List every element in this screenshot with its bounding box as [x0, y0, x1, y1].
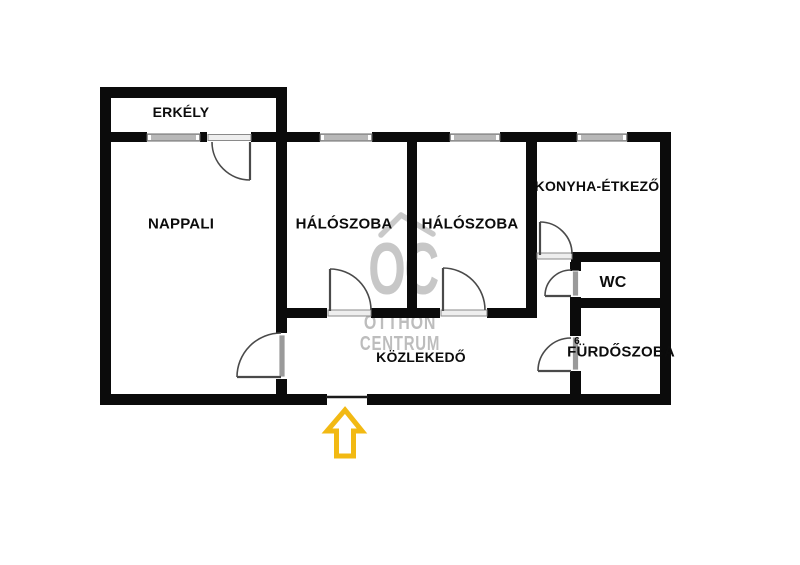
door-swing-arc [237, 333, 281, 377]
window-kitchen [577, 134, 627, 141]
window-cap [451, 135, 454, 140]
door-swing-arc [540, 222, 572, 254]
wall-wc-bottom [570, 298, 671, 308]
window-balcony [147, 134, 200, 141]
room-label-kozlekedo: KÖZLEKEDŐ [376, 350, 466, 364]
door-leaf-closed [279, 335, 285, 377]
wall-bottom-left [100, 394, 327, 405]
window-cap [496, 135, 499, 140]
room-label-nappali: NAPPALI [148, 217, 214, 232]
door-sill [328, 310, 371, 316]
wall-top-pier [500, 132, 577, 142]
wall-top-pier [100, 132, 147, 142]
window-cap [623, 135, 626, 140]
window-cap [196, 135, 199, 140]
door-swing-arc [538, 338, 571, 371]
wall-bedroom2-right [526, 132, 537, 318]
door-sill [537, 253, 572, 259]
door-swing-arc [545, 270, 571, 296]
wc-door [545, 270, 579, 296]
door-swing-arc [443, 268, 485, 310]
wall-bedroom-divider [407, 132, 417, 318]
wall-bedrooms-bottom [371, 308, 440, 318]
wall-top-pier [200, 132, 207, 142]
room-label-furdoszoba: FÜRDŐSZOBA [567, 345, 675, 360]
window-cap [148, 135, 151, 140]
wall-balcony-top [100, 87, 287, 98]
wall-kitchen-bottom [571, 252, 671, 262]
wall-bedrooms-bottom [287, 308, 327, 318]
room-label-erkely: ERKÉLY [153, 105, 210, 119]
floorplan-drawing: OC OTTHON CENTRUM [0, 0, 800, 565]
room-label-konyha-etkezo: KONYHA-ÉTKEZŐ [535, 179, 660, 193]
door-swing-arc [330, 269, 371, 310]
entrance-arrow-icon [327, 410, 362, 456]
wall-bottom-right [367, 394, 671, 405]
floorplan-canvas: OC OTTHON CENTRUM [0, 0, 800, 565]
door-sill [208, 135, 251, 141]
wall-right [660, 132, 671, 405]
balcony-door [208, 135, 251, 181]
room-label-haloszoba-2: HÁLÓSZOBA [422, 217, 519, 232]
wall-top-pier [251, 132, 320, 142]
door-sill [441, 310, 487, 316]
wall-bath-left [570, 371, 581, 394]
window-cap [578, 135, 581, 140]
window-bedroom1 [320, 134, 372, 141]
room-label-haloszoba-1: HÁLÓSZOBA [296, 217, 393, 232]
watermark: OC OTTHON CENTRUM [360, 215, 440, 355]
bedroom2-door [441, 268, 487, 316]
window-cap [321, 135, 324, 140]
wall-bedrooms-bottom [487, 308, 537, 318]
room-label-wc: WC [599, 275, 626, 291]
kitchen-door [537, 222, 572, 259]
living-room-door [237, 333, 285, 377]
watermark-logo: OC [368, 229, 438, 310]
window-cap [368, 135, 371, 140]
door-number-label: 6 [574, 337, 580, 347]
window-bedroom2 [450, 134, 500, 141]
wall-living-right-upper [276, 87, 287, 333]
bedroom1-door [328, 269, 371, 316]
door-swing-arc [212, 142, 250, 180]
wall-wc-left [570, 262, 581, 271]
door-leaf-closed [573, 271, 579, 296]
